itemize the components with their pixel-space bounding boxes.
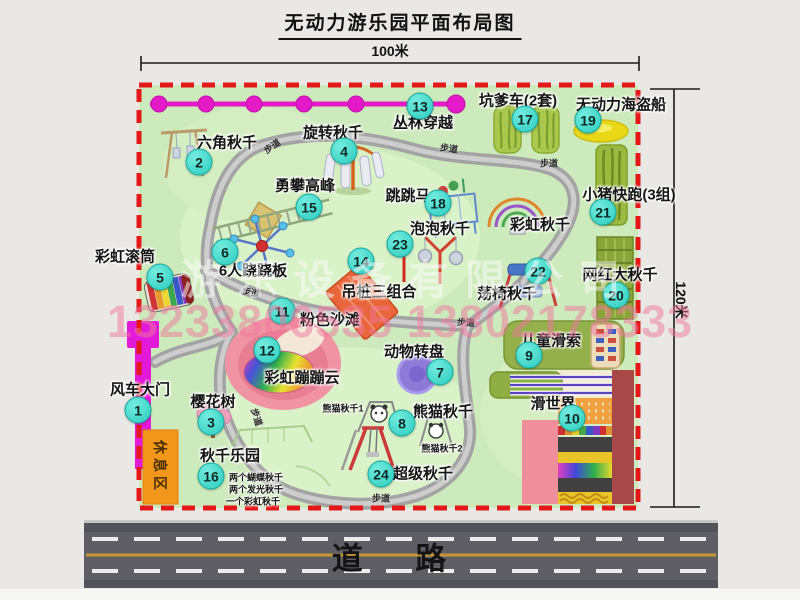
attraction-badge-7: 7 bbox=[427, 359, 454, 386]
attraction-label-15: 勇攀高峰 bbox=[275, 175, 335, 196]
width-dimension-label: 100米 bbox=[371, 41, 408, 61]
attraction-badge-10: 10 bbox=[559, 405, 586, 432]
path-sign-0: 步道 bbox=[261, 136, 283, 157]
attraction-label-5: 彩虹滚筒 bbox=[95, 246, 155, 267]
attraction-badge-15: 15 bbox=[296, 194, 323, 221]
attraction-badge-3: 3 bbox=[198, 409, 225, 436]
attraction-badge-21: 21 bbox=[590, 199, 617, 226]
attraction-badge-4: 4 bbox=[331, 138, 358, 165]
attraction-label-23: 泡泡秋千 bbox=[410, 218, 470, 239]
rest-area-label: 休息区 bbox=[150, 440, 170, 494]
attraction-badge-8: 8 bbox=[389, 410, 416, 437]
extra-label-0: 彩虹秋千 bbox=[510, 214, 570, 235]
attraction-badge-19: 19 bbox=[575, 107, 602, 134]
attraction-badge-16: 16 bbox=[198, 463, 225, 490]
attraction-badge-13: 13 bbox=[407, 93, 434, 120]
attraction-label-12: 彩虹蹦蹦云 bbox=[264, 367, 339, 388]
page-title: 无动力游乐园平面布局图 bbox=[278, 8, 521, 40]
attraction-badge-17: 17 bbox=[512, 106, 539, 133]
attraction-label-8: 熊猫秋千 bbox=[413, 401, 473, 422]
attraction-badge-1: 1 bbox=[125, 397, 152, 424]
path-sign-6: 步道 bbox=[372, 492, 390, 505]
path-sign-2: 步道 bbox=[540, 157, 558, 170]
road-label: 道 路 bbox=[332, 534, 469, 579]
path-sign-1: 步道 bbox=[439, 140, 459, 155]
attraction-badge-18: 18 bbox=[425, 190, 452, 217]
attraction-label-24: 超级秋千 bbox=[393, 463, 453, 484]
attraction-label-4: 旋转秋千 bbox=[303, 122, 363, 143]
attraction-badge-5: 5 bbox=[147, 264, 174, 291]
watermark-phone: 13233806535 13802178333 bbox=[107, 296, 693, 348]
attraction-badge-2: 2 bbox=[186, 149, 213, 176]
extra-label-1: 熊猫秋千1 bbox=[322, 402, 363, 415]
attraction-badge-24: 24 bbox=[368, 461, 395, 488]
extra-label-5: 一个彩虹秋千 bbox=[226, 495, 280, 508]
attraction-label-2: 六角秋千 bbox=[197, 132, 257, 153]
park-plan-image: 无动力游乐园平面布局图 100米 120米 风车大门1六角秋千2樱花树3旋转秋千… bbox=[0, 0, 800, 600]
extra-label-2: 熊猫秋千2 bbox=[421, 442, 462, 455]
path-sign-5: 步道 bbox=[248, 406, 266, 427]
